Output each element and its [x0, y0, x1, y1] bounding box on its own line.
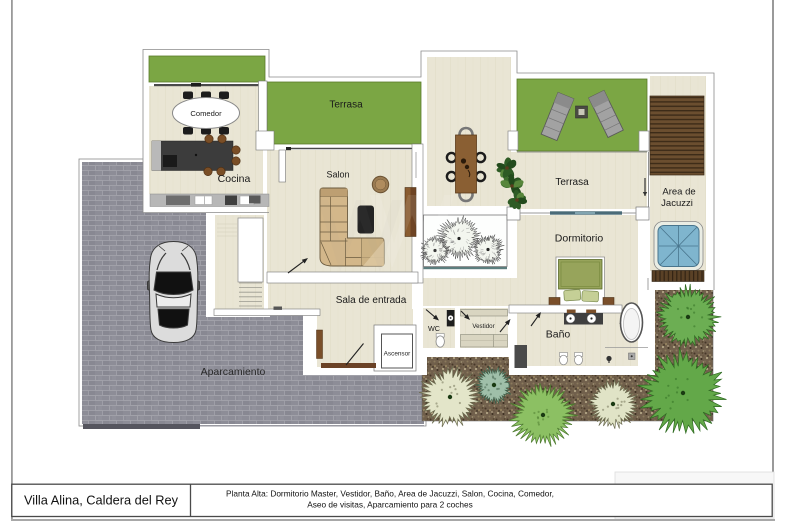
svg-text:Terrasa: Terrasa [555, 177, 589, 188]
svg-text:Aseo de visitas, Aparcamiento: Aseo de visitas, Aparcamiento para 2 coc… [307, 500, 473, 510]
svg-text:Aparcamiento: Aparcamiento [201, 366, 266, 378]
svg-text:Ascensor: Ascensor [384, 351, 412, 358]
svg-text:Salon: Salon [326, 170, 349, 180]
svg-text:Villa Alina, Caldera del Rey: Villa Alina, Caldera del Rey [24, 493, 179, 508]
svg-text:Sala de entrada: Sala de entrada [336, 295, 407, 306]
svg-text:Planta Alta: Dormitorio Master: Planta Alta: Dormitorio Master, Vestidor… [226, 489, 554, 499]
svg-text:Vestidor: Vestidor [472, 323, 494, 330]
svg-text:Area de: Area de [662, 187, 695, 198]
svg-text:Terrasa: Terrasa [329, 100, 363, 111]
svg-text:Baño: Baño [546, 329, 571, 341]
svg-text:Comedor: Comedor [190, 109, 222, 118]
svg-text:Dormitorio: Dormitorio [555, 233, 604, 245]
svg-text:Jacuzzi: Jacuzzi [661, 198, 693, 209]
svg-text:Cocina: Cocina [218, 173, 251, 185]
svg-text:WC: WC [428, 324, 440, 333]
